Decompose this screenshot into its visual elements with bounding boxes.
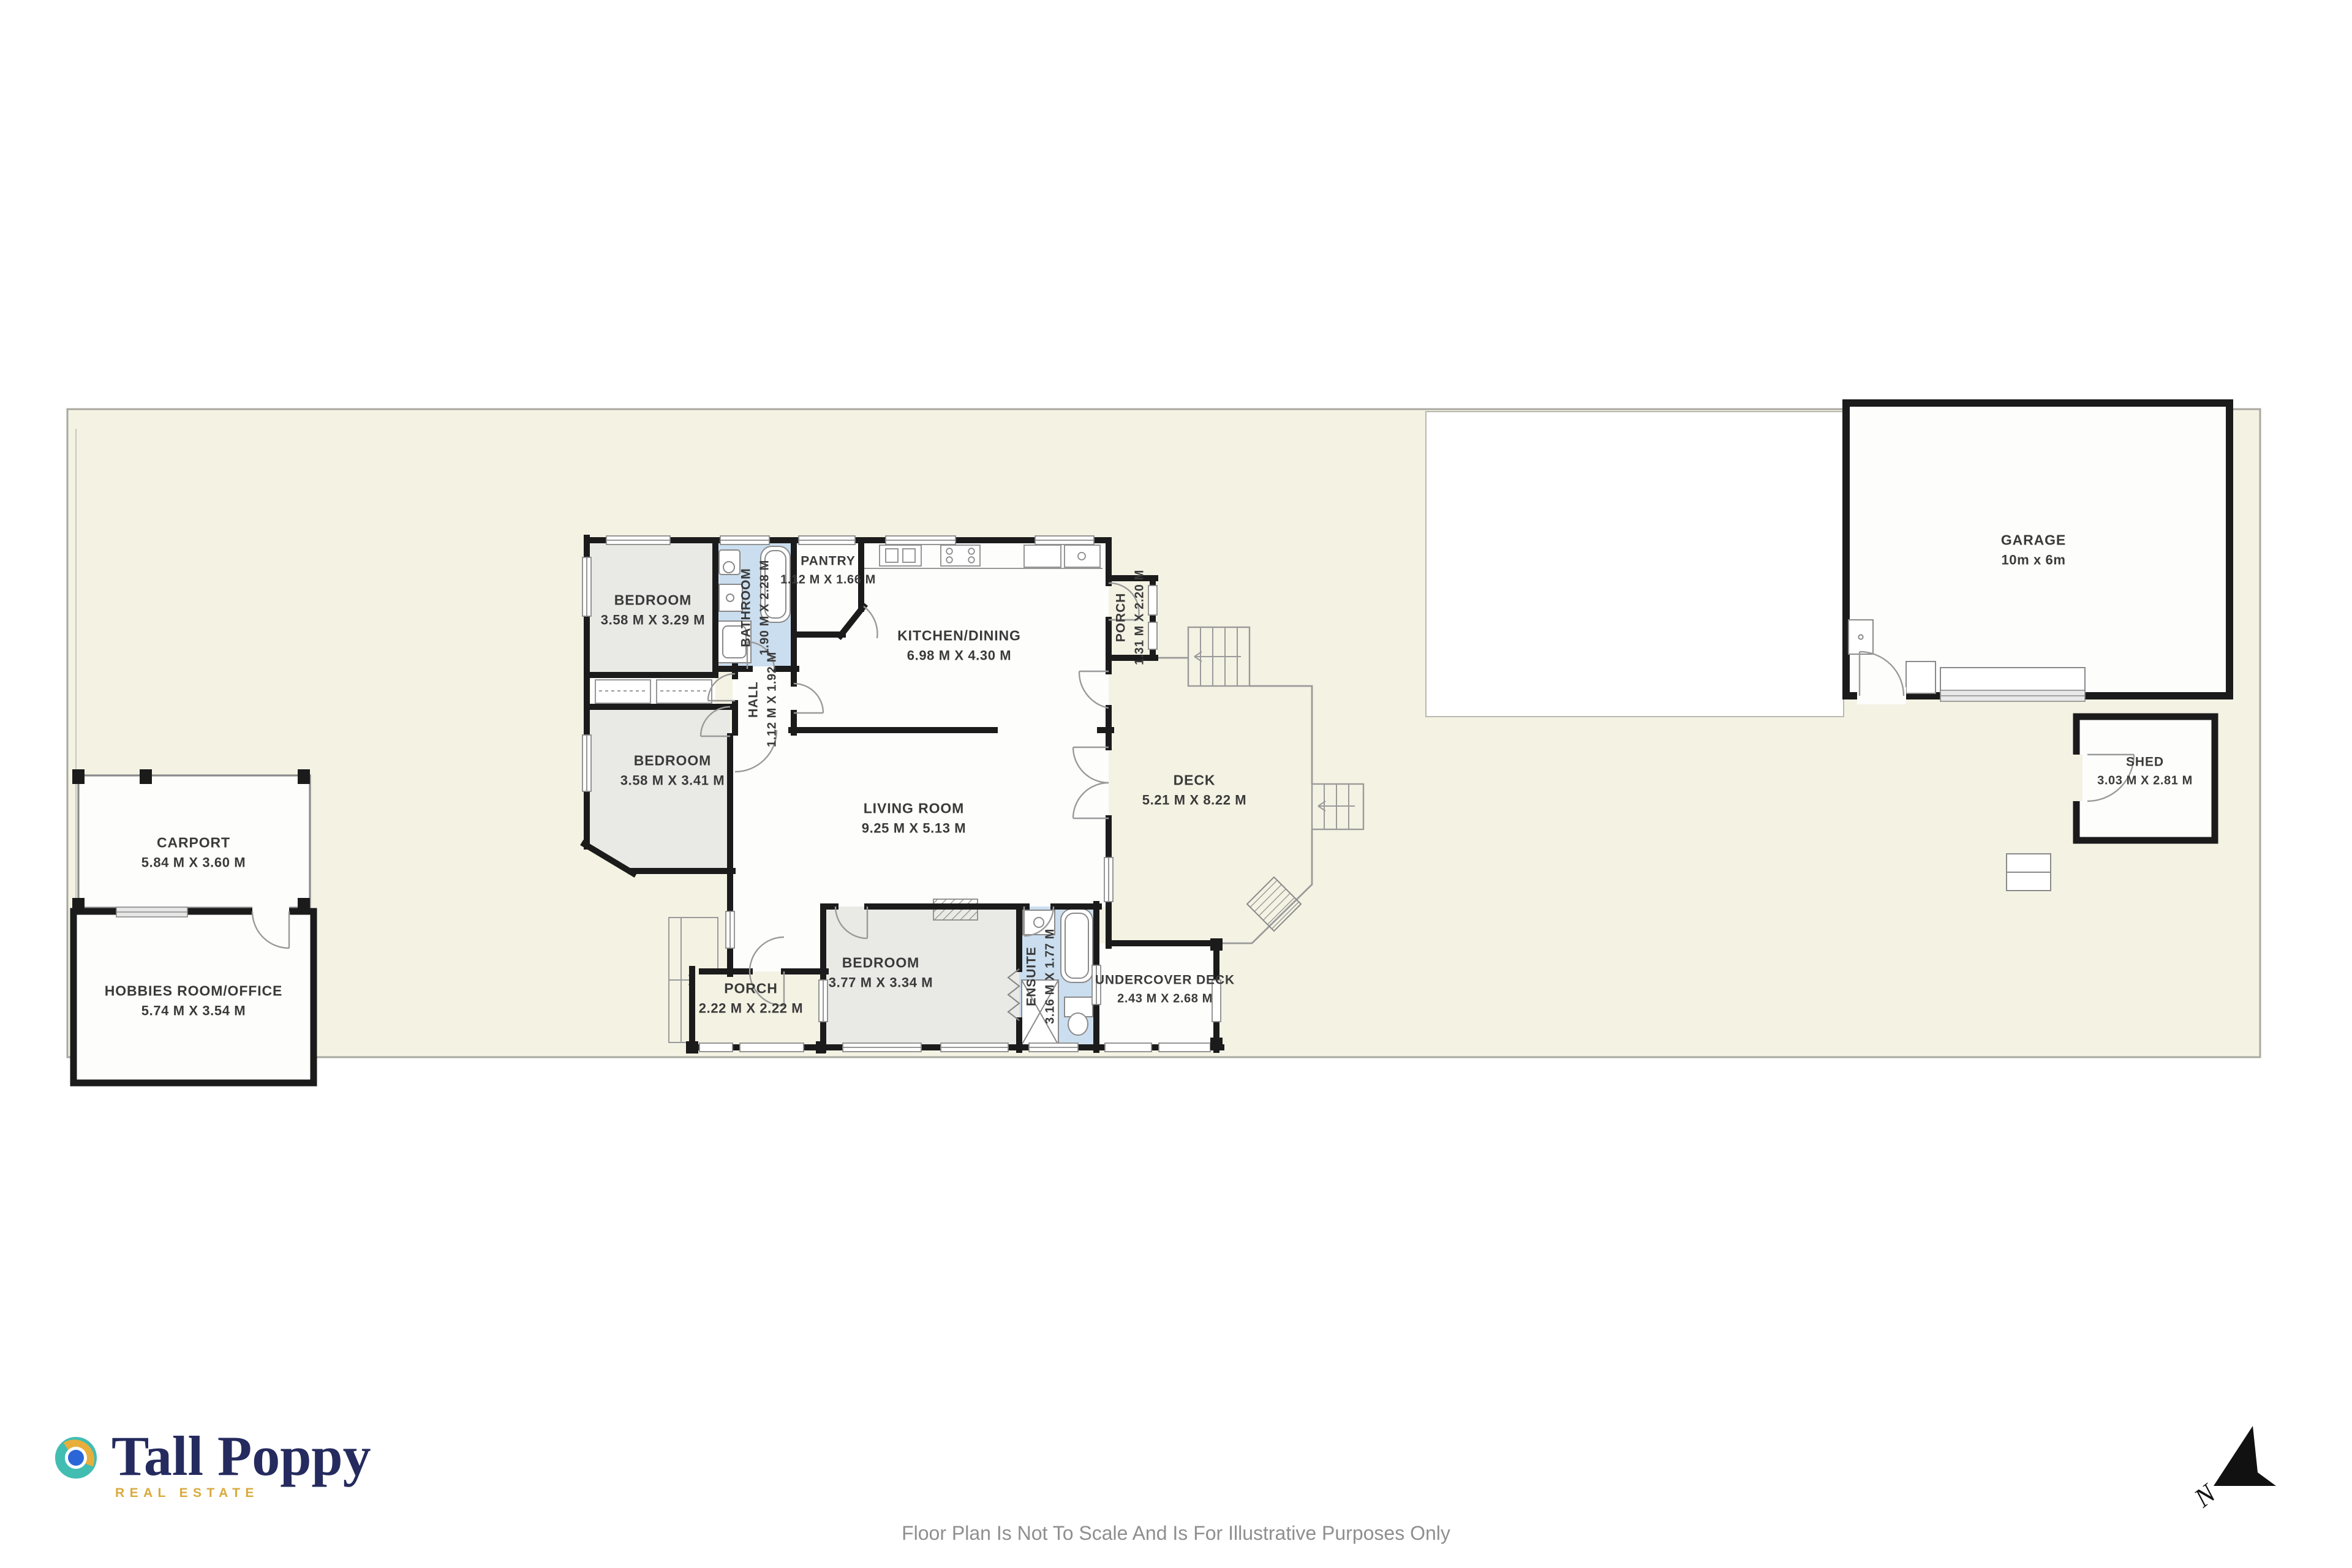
tall-poppy-logo-icon (54, 1436, 98, 1480)
garage-door-gap (1857, 687, 1906, 704)
room-label-undercover-deck: UNDERCOVER DECK2.43 M X 2.68 M (1095, 971, 1235, 1008)
brand-name: Tall Poppy (111, 1431, 371, 1483)
brand-tagline: REAL ESTATE (115, 1487, 371, 1501)
room-label-porch-bottom: PORCH2.22 M X 2.22 M (699, 979, 803, 1019)
room-label-deck: DECK5.21 M X 8.22 M (1142, 771, 1246, 811)
brand-logo: Tall Poppy REAL ESTATE (54, 1431, 371, 1501)
room-label-hall: HALL1.12 M X 1.92 M (745, 652, 782, 747)
room-label-living-room: LIVING ROOM9.25 M X 5.13 M (862, 799, 966, 839)
room-label-kitchen-dining: KITCHEN/DINING6.98 M X 4.30 M (897, 627, 1021, 666)
room-label-carport: CARPORT5.84 M X 3.60 M (141, 834, 246, 873)
driveway-area (1426, 412, 1844, 717)
deck-stairs-right (1312, 784, 1363, 829)
disclaimer-text: Floor Plan Is Not To Scale And Is For Il… (0, 1524, 2352, 1546)
room-label-bedroom-1: BEDROOM3.58 M X 3.29 M (601, 591, 705, 631)
room-label-ensuite: ENSUITE3.16 M X 1.77 M (1023, 929, 1060, 1024)
floor-plan-page: BEDROOM3.58 M X 3.29 M BATHROOM1.90 M X … (0, 0, 2352, 1568)
room-label-pantry: PANTRY1.12 M X 1.66 M (780, 552, 876, 589)
room-label-garage: GARAGE10m x 6m (2001, 531, 2066, 571)
room-label-shed: SHED3.03 M X 2.81 M (2097, 753, 2193, 790)
north-arrow-icon (2214, 1426, 2276, 1486)
room-label-porch-right: PORCH1.31 M X 2.20 M (1112, 570, 1149, 665)
room-label-hobbies-room: HOBBIES ROOM/OFFICE5.74 M X 3.54 M (105, 982, 283, 1022)
room-label-bedroom-3: BEDROOM3.77 M X 3.34 M (829, 954, 933, 993)
deck-stairs-top (1188, 627, 1249, 686)
yard-unit (2007, 854, 2051, 891)
room-label-bathroom: BATHROOM1.90 M X 2.28 M (737, 560, 774, 655)
room-label-bedroom-2: BEDROOM3.58 M X 3.41 M (620, 752, 725, 791)
north-compass: N (2190, 1416, 2301, 1526)
brand-logo-text: Tall Poppy REAL ESTATE (111, 1431, 371, 1501)
